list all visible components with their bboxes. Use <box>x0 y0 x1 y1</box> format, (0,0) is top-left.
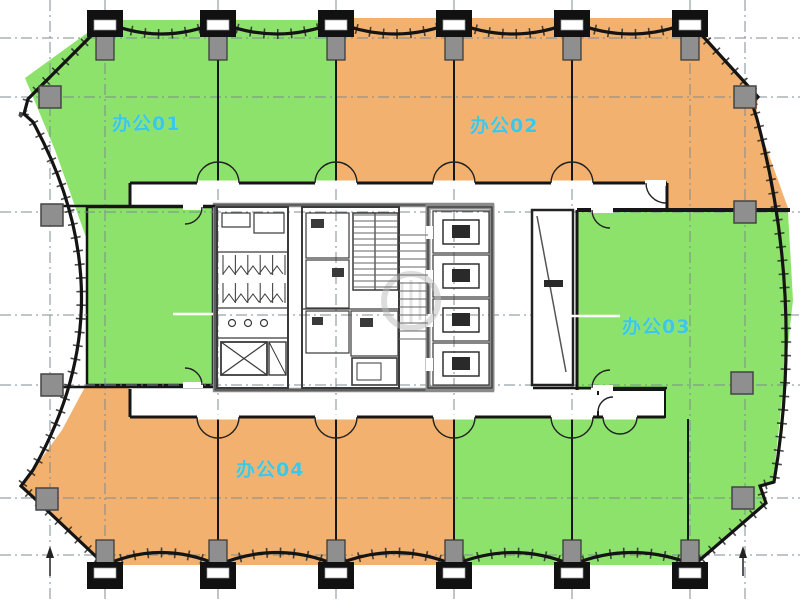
column-label-chip <box>561 20 583 30</box>
door-gap <box>197 415 239 420</box>
column-label-chip <box>325 568 347 578</box>
column-square <box>732 487 754 509</box>
door-gap <box>603 415 637 420</box>
column-label-chip <box>679 20 701 30</box>
column-square <box>41 374 63 396</box>
fixture-dark <box>312 317 323 325</box>
door-gap <box>433 415 475 420</box>
door-gap <box>591 207 613 213</box>
column-stem <box>563 36 581 60</box>
column-stem <box>209 36 227 60</box>
column-label-chip <box>561 568 583 578</box>
elevator-glyph <box>452 225 470 238</box>
entry-arrow-head <box>46 546 54 558</box>
column-label-chip <box>94 20 116 30</box>
column-label-chip <box>443 20 465 30</box>
column-label-chip <box>443 568 465 578</box>
column-stem <box>96 540 114 564</box>
door-gap <box>183 382 203 388</box>
elevator-glyph <box>452 357 470 370</box>
column-label-chip <box>94 568 116 578</box>
zone-label-office-01: 办公01 <box>112 109 180 136</box>
column-square <box>39 86 61 108</box>
side-room <box>598 390 665 417</box>
door-gap <box>315 415 357 420</box>
shaft-room <box>532 210 573 385</box>
column-stem <box>327 540 345 564</box>
column-label-chip <box>207 20 229 30</box>
floor-plan-svg <box>0 0 800 600</box>
column-stem <box>681 36 699 60</box>
column-stem <box>96 36 114 60</box>
zone-label-office-02: 办公02 <box>470 111 538 138</box>
column-square <box>734 86 756 108</box>
column-square <box>731 372 753 394</box>
door-gap <box>315 181 357 186</box>
zone-label-office-04: 办公04 <box>236 455 304 482</box>
door-gap <box>197 181 239 186</box>
elevator-door-slit <box>426 358 433 371</box>
door-gap <box>645 180 666 186</box>
column-label-chip <box>207 568 229 578</box>
zone-label-office-03: 办公03 <box>622 312 690 339</box>
west-office-strip <box>87 207 213 385</box>
fixture-dark <box>332 268 344 277</box>
fixture-dark <box>311 219 324 228</box>
column-stem <box>681 540 699 564</box>
column-stem <box>327 36 345 60</box>
entry-arrow-head <box>739 546 747 558</box>
door-gap <box>591 385 613 391</box>
column-stem <box>445 540 463 564</box>
door-gap <box>433 181 475 186</box>
elevator-door-slit <box>426 226 433 239</box>
fixture-dark <box>360 318 373 327</box>
column-stem <box>445 36 463 60</box>
floor-plan-page: 办公01 办公02 办公03 办公04 <box>0 0 800 600</box>
column-label-chip <box>325 20 347 30</box>
column-square <box>734 201 756 223</box>
column-stem <box>563 540 581 564</box>
door-gap <box>183 204 203 210</box>
door-gap <box>551 181 593 186</box>
door-gap <box>551 415 593 420</box>
column-stem <box>209 540 227 564</box>
column-square <box>36 488 58 510</box>
column-square <box>41 204 63 226</box>
shaft-room-mark <box>544 280 563 287</box>
elevator-glyph <box>452 313 470 326</box>
elevator-glyph <box>452 269 470 282</box>
column-label-chip <box>679 568 701 578</box>
